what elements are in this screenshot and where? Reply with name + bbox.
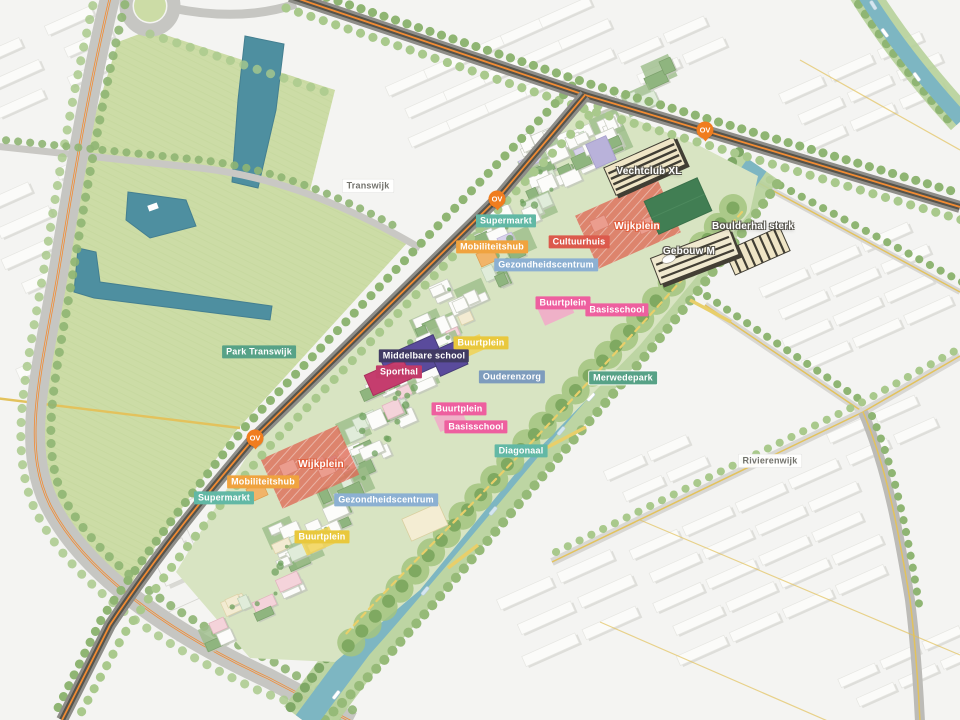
ov-transit-stop-pin: OV [247, 430, 264, 447]
tree [285, 545, 289, 549]
tree [549, 188, 553, 192]
tree [445, 335, 450, 340]
tree [447, 287, 451, 291]
ov-transit-stop-pin: OV [489, 191, 506, 208]
label-gebouw-m: Gebouw M [659, 245, 719, 260]
tree [394, 419, 400, 425]
label-buurtplein-yellow-north: Buurtplein [454, 336, 509, 349]
label-supermarkt-south: Supermarkt [194, 491, 254, 504]
label-cultuurhuis: Cultuurhuis [549, 235, 610, 248]
tree [385, 436, 392, 443]
label-diagonaal: Diagonaal [495, 444, 548, 457]
label-gezondheidscentrum-south: Gezondheidscentrum [334, 493, 438, 506]
tree [359, 413, 366, 420]
tree [520, 199, 524, 203]
label-middelbare-school: Middelbare school [379, 349, 469, 362]
tree [395, 390, 401, 396]
tree [404, 393, 410, 399]
label-gezondheidscentrum-north: Gezondheidscentrum [494, 258, 598, 271]
tree [361, 476, 366, 481]
label-supermarkt-north: Supermarkt [476, 214, 536, 227]
district-plan-map[interactable]: Transwijk Park Transwijk Supermarkt Mobi… [0, 0, 960, 720]
label-buurtplein-pink-south: Buurtplein [432, 402, 487, 415]
label-ouderenzorg: Ouderenzorg [479, 370, 545, 383]
tree [359, 428, 365, 434]
label-park-transwijk: Park Transwijk [222, 345, 296, 358]
ov-transit-stop-pin: OV [697, 122, 714, 139]
label-mobiliteitshub-north: Mobiliteitshub [456, 240, 528, 253]
label-basisschool-south: Basisschool [444, 420, 507, 433]
tree [393, 396, 398, 401]
label-mobiliteitshub-south: Mobiliteitshub [227, 475, 299, 488]
label-sporthal: Sporthal [376, 365, 422, 378]
label-boulderhal-sterk: Boulderhal sterk [708, 220, 798, 235]
map-illustration [0, 0, 960, 720]
tree [276, 563, 283, 570]
tree [531, 201, 538, 208]
label-rivierenwijk: Rivierenwijk [739, 454, 802, 467]
tree [372, 450, 378, 456]
label-transwijk: Transwijk [343, 179, 394, 192]
label-merwedepark: Merwedepark [589, 371, 657, 384]
tree [411, 384, 418, 391]
label-wijkplein-north: Wijkplein [610, 220, 664, 235]
tree [274, 592, 278, 596]
label-buurtplein-pink-north: Buurtplein [536, 296, 591, 309]
tree [271, 568, 279, 576]
label-wijkplein-south: Wijkplein [294, 458, 348, 473]
label-basisschool-north: Basisschool [585, 303, 648, 316]
tree [230, 604, 235, 609]
label-buurtplein-yellow-south: Buurtplein [295, 530, 350, 543]
label-vechtclub-xl: Vechtclub XL [612, 165, 685, 180]
tree [402, 401, 409, 408]
tree [255, 601, 260, 606]
